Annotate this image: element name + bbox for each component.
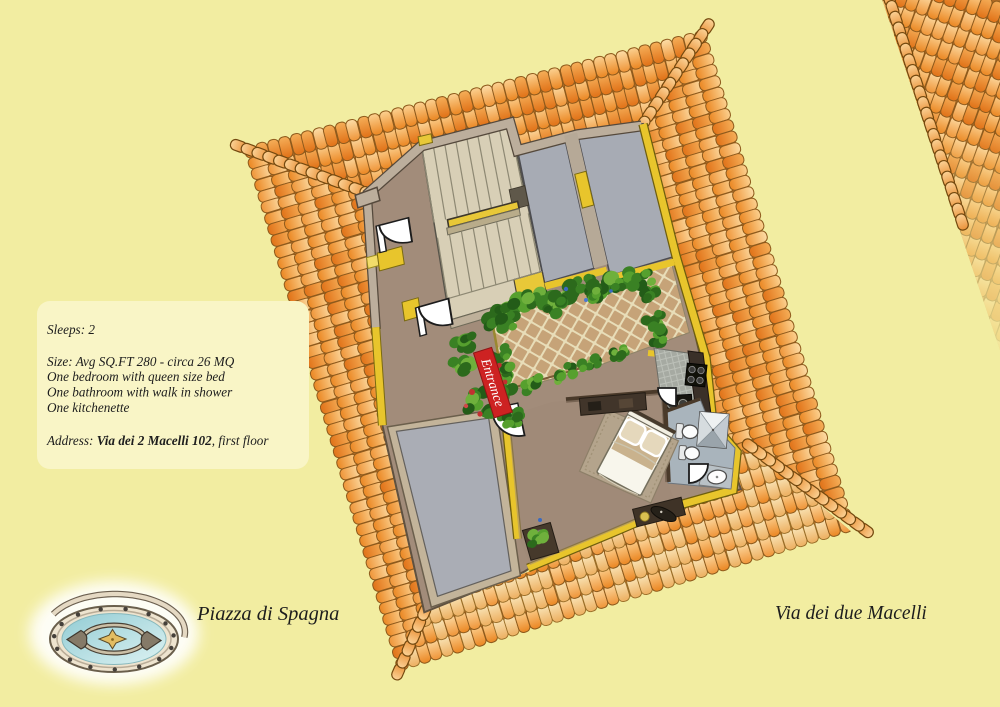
svg-text:Piazza di Spagna: Piazza di Spagna	[196, 603, 339, 625]
svg-text:One kitchenette: One kitchenette	[47, 400, 130, 415]
svg-text:Address: Via dei 2 Macelli 102: Address: Via dei 2 Macelli 102, first fl…	[46, 433, 269, 448]
svg-text:Via dei due Macelli: Via dei due Macelli	[775, 603, 927, 624]
svg-text:One bathroom with walk in show: One bathroom with walk in shower	[47, 385, 233, 400]
svg-text:Size: Avg SQ.FT 280 - circa 26: Size: Avg SQ.FT 280 - circa 26 MQ	[47, 354, 235, 369]
svg-text:One bedroom with queen size be: One bedroom with queen size bed	[47, 369, 225, 384]
svg-text:Sleeps: 2: Sleeps: 2	[47, 322, 95, 337]
